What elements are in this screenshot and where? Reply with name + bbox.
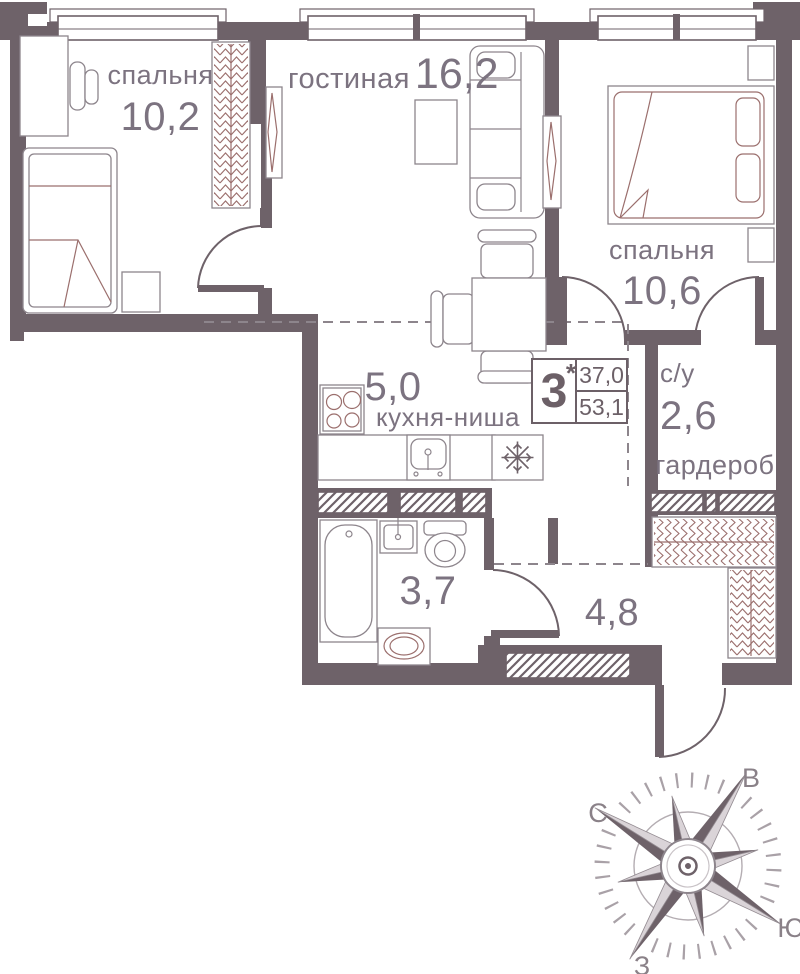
door-leaf-bedroom1 [198,285,264,292]
bedroom2-label: спальня [587,237,737,264]
door-leaf-bedroom2 [558,277,567,345]
nightstand [748,228,774,262]
desk [20,36,68,136]
kitchen-area: 5,0 [348,367,438,407]
rooms-count-cell: 3 * [533,360,577,422]
compass-rose [536,714,800,974]
furniture-wardrobe-hall [652,517,776,658]
window-bedroom1 [58,16,218,40]
floor-plan: спальня 10,2 гостиная 16,2 спальня 10,6 … [0,0,800,974]
floor-plan-drawing [0,0,800,974]
living-area: 16,2 [415,50,499,99]
compass-west-label: З [627,951,657,974]
door-leaf-bathroom [491,630,559,638]
compass-main-points [536,714,800,974]
wc-label: с/у [660,360,740,386]
kitchen-label: кухня-ниша [368,404,528,430]
living-area-value: 37,0 [577,360,626,392]
dining-table [472,278,546,351]
rooms-count: 3 [541,364,568,419]
nightstand [122,272,160,312]
bedroom1-area: 10,2 [78,97,243,137]
door-leaf-wc [755,277,764,345]
dining-chair [431,291,443,347]
nightstand [748,46,774,80]
compass-north-label: С [583,798,613,829]
door-swing-bathroom [493,570,559,636]
compass-east-label: В [736,763,766,794]
living-label: гостиная [288,63,410,96]
living-label-line: гостиная 16,2 [288,50,499,99]
compass-south-label: Ю [776,913,800,944]
pillow [736,154,760,202]
wc-area: 2,6 [660,396,750,436]
coffee-table [415,100,457,164]
bathroom-area: 3,7 [383,571,473,611]
bedroom1-label: спальня [78,62,243,89]
dining-chair [478,230,536,242]
bedroom2-area: 10,6 [587,271,737,311]
hallway-area: 4,8 [570,594,654,632]
door-swing-entrance [659,688,725,757]
door-swing-bedroom1 [198,226,264,288]
wardrobe-label: гардероб [650,452,780,479]
pillow [736,98,760,146]
apartment-info-badge: 3 * 37,0 53,1 [531,358,628,424]
furniture-bedroom2 [543,46,774,262]
door-leaf-entrance [655,685,664,757]
star-mark: * [566,358,576,389]
windows [50,9,764,40]
total-area-value: 53,1 [577,392,626,422]
